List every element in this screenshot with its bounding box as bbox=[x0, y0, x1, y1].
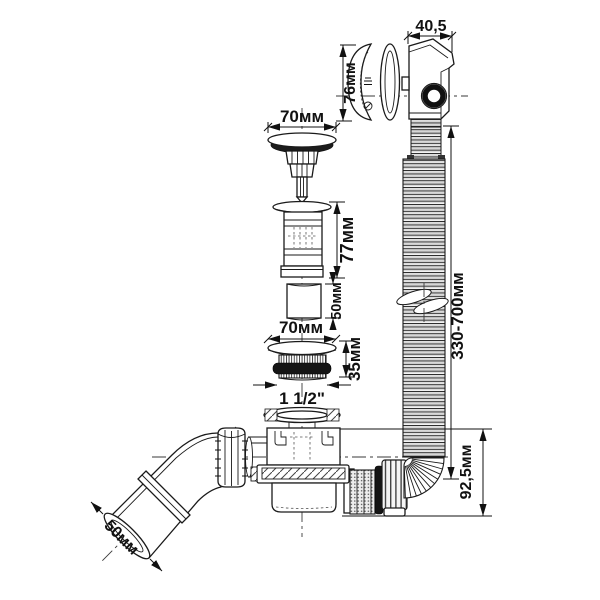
dimension-adapter-height: 50мм bbox=[325, 272, 345, 330]
hose-step-left bbox=[407, 155, 414, 159]
drain-flange bbox=[268, 342, 336, 381]
dim-label-overflow-cover-height: 76мм bbox=[342, 62, 359, 103]
washer-cut-left bbox=[265, 409, 277, 421]
dim-label-adapter-height: 50мм bbox=[329, 282, 345, 320]
siphon-upper-cup bbox=[267, 428, 340, 465]
dimension-thread-size: 1 1/2" bbox=[253, 385, 351, 408]
dim-label-flange-diameter: 70мм bbox=[279, 318, 323, 337]
dimension-flange-diameter: 70мм bbox=[264, 318, 340, 343]
dimension-drain-body-height: 77мм bbox=[329, 202, 357, 278]
hose-top-section bbox=[411, 127, 441, 157]
corrugated-hose bbox=[395, 119, 450, 498]
overflow-gasket bbox=[381, 44, 400, 120]
drain-body bbox=[273, 202, 331, 278]
siphon-flange-left-cap bbox=[251, 467, 257, 481]
overflow-assembly bbox=[348, 39, 454, 120]
adapter-cylinder bbox=[287, 284, 321, 320]
dim-label-flange-thread-height: 35мм bbox=[345, 337, 364, 381]
flange-top bbox=[268, 342, 336, 355]
drain-body-rim bbox=[281, 266, 323, 277]
hose-connection bbox=[350, 460, 407, 516]
overflow-thread-stub bbox=[411, 119, 441, 127]
drain-siphon-exploded-diagram: 40,5 76мм 70мм 77мм 50мм 70мм 35мм 1 1/2… bbox=[0, 0, 600, 600]
dim-label-hose-length: 330-700мм bbox=[448, 272, 467, 360]
plug-stem bbox=[297, 177, 307, 197]
hose-nut bbox=[382, 460, 407, 510]
dimension-plug-cap-diameter: 70мм bbox=[264, 107, 340, 133]
washer-cut-right bbox=[327, 409, 339, 421]
washer-inner bbox=[277, 411, 327, 419]
overflow-screw-slot bbox=[364, 78, 372, 85]
overflow-boss bbox=[402, 77, 409, 90]
plug-cap-top bbox=[268, 133, 336, 147]
dim-label-overflow-width: 40,5 bbox=[415, 18, 446, 35]
drain-plug bbox=[268, 133, 336, 203]
flange-gasket bbox=[273, 363, 331, 374]
diagram-canvas: 40,5 76мм 70мм 77мм 50мм 70мм 35мм 1 1/2… bbox=[0, 0, 600, 600]
plug-collar bbox=[286, 151, 318, 164]
overflow-screw-line bbox=[365, 103, 371, 109]
dim-label-thread-size: 1 1/2" bbox=[279, 389, 325, 408]
hose-nut-lip bbox=[384, 508, 405, 516]
siphon-body bbox=[251, 421, 354, 513]
siphon-flange-hatch bbox=[262, 468, 345, 479]
dim-label-plug-cap-diameter: 70мм bbox=[280, 107, 324, 126]
dimension-flange-thread-height: 35мм bbox=[339, 337, 364, 381]
washer bbox=[264, 408, 340, 423]
adapter-shell bbox=[287, 284, 321, 318]
dim-label-drain-body-height: 77мм bbox=[337, 217, 357, 264]
hose-step-right bbox=[438, 155, 445, 159]
dim-label-siphon-height: 92,5мм bbox=[458, 445, 475, 500]
